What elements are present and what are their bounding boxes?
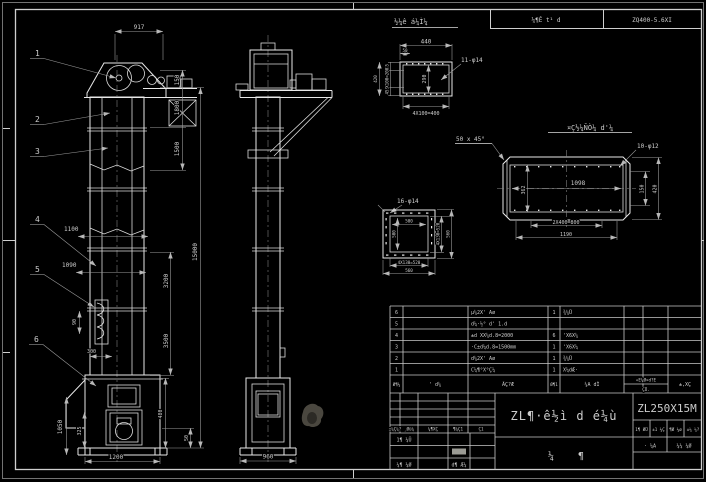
holes-label-10-d12: 10-φ12	[637, 143, 659, 150]
detail-flange: 16-φ14 500 500 4X130=520 560 4X130=520 5…	[378, 198, 454, 275]
bom-material: X¼dÆ·	[563, 368, 578, 374]
drawing-canvas: ¼¶Ê t¹ d ZQ400-5.6XI ½¼ê á¼Ì¼	[0, 0, 706, 482]
detail-casing-section: ¤Ç½¼ÑÒ¼ d'¼ 50 x 45° 10-φ12 1098 362 150…	[455, 123, 662, 240]
dim-90: 90	[72, 319, 78, 325]
bom-header-weight-sub: ÇÜ.	[642, 387, 650, 392]
bom-qty: 1	[552, 368, 555, 374]
bom-header-material: ¼A dÌ	[584, 381, 599, 388]
detail-channel-frame: 440 50 45 2X100=200 45 420 290 11-φ14 4X…	[373, 39, 483, 118]
bom-name: μ¼2X' Aø	[471, 310, 495, 316]
dim-50: 50	[184, 435, 190, 441]
bom-material: 'X6X¼	[563, 333, 578, 339]
stage-cell: ¶Ø ¼ø	[669, 427, 682, 433]
dim-flange-inner-w: 500	[405, 219, 413, 224]
bom-name: d¼·½° d' 1.d	[471, 321, 507, 328]
holes-label-11-d14: 11-φ14	[461, 57, 483, 64]
header-cell-1: ¼¶Ê t¹ d	[532, 16, 561, 24]
balloon-2: 2	[35, 115, 40, 124]
dim-45-bottom: 45	[385, 89, 390, 95]
bom-header-name: ÃÇ?Æ	[502, 381, 514, 388]
front-view-dimensions: 917 150 1800 1500 15000 3200 3500 1100 1…	[57, 24, 204, 464]
side-motor	[296, 74, 312, 90]
dim-1050: 1050	[57, 419, 64, 434]
dim-960: 960	[263, 454, 274, 461]
dim-290: 290	[422, 74, 428, 83]
dim-4x100-400: 4X100=400	[412, 111, 439, 117]
bom-header-seq: Ø¶¼	[393, 382, 401, 388]
cad-drawing-page: ¼¶Ê t¹ d ZQ400-5.6XI ½¼ê á¼Ì¼	[0, 0, 706, 482]
bom-name: d¼2X' Aø	[471, 356, 495, 362]
header-cell-2-gearbox-model: ZQ400-5.6XI	[632, 17, 672, 24]
sign-label-3: d¶ Æ¼	[451, 463, 466, 469]
dim-flange-right-pitch: 4X130=520	[436, 222, 441, 245]
bom-seq: 4	[395, 333, 398, 339]
bom-name: C¼¶°X°Ç¼	[471, 368, 495, 374]
detail-channel-title: ½¼ê á¼Ì¼	[394, 17, 428, 26]
dim-3500: 3500	[163, 333, 170, 348]
bom-qty: 1	[552, 356, 555, 362]
feed-chute	[66, 380, 85, 428]
sheet-count: · ¼A	[644, 444, 656, 450]
bom-name: ·C±d¼d.8=1500mm	[471, 345, 516, 351]
bom-material: ¾¼Ü	[563, 309, 572, 316]
dim-1190: 1190	[560, 232, 572, 238]
balloon-5: 5	[35, 265, 40, 274]
stage-cell: 1¶ ØÜ	[635, 427, 648, 432]
bom-material: 'X6X¼	[563, 345, 578, 351]
stage-cell: ±¼ ¼?	[687, 427, 700, 433]
rev-label: ¼¶XÇ	[428, 427, 439, 433]
dim-15000-total-height: 15000	[192, 243, 199, 261]
dim-420-left: 420	[373, 75, 378, 83]
rev-label: ¸Øü¼	[404, 427, 415, 433]
bom-header-code: ' d¼	[429, 382, 441, 388]
title-char-right: ¶	[578, 451, 584, 462]
bom-seq: 5	[395, 322, 398, 328]
bom-seq: 3	[395, 345, 398, 351]
dim-1100: 1100	[64, 226, 79, 233]
model-number: ZL250X15M	[637, 402, 697, 415]
bom-header-qty: Ø¶1	[550, 382, 558, 387]
render-artifact-blob	[302, 404, 324, 427]
dim-1800: 1800	[174, 100, 181, 115]
dim-flange-inner-h: 500	[392, 230, 397, 238]
dim-917: 917	[134, 24, 145, 31]
dim-flange-bottom-pitch: 4X130=520	[398, 260, 421, 265]
dim-150: 150	[174, 74, 181, 85]
dim-362: 362	[521, 185, 527, 194]
dim-flange-right-total: 560	[446, 230, 451, 238]
drawing-title: ZL¶·ê½ì d é¼ù	[511, 409, 618, 423]
bom-seq: 6	[395, 310, 398, 316]
bom-header-remark: ±,XÇ	[679, 382, 691, 388]
dim-2x100: 2X100=200	[385, 67, 390, 90]
dim-2x400-800: 2X400=800	[552, 220, 579, 226]
section-title: ¤Ç½¼ÑÒ¼ d'¼	[567, 123, 613, 132]
bucket-chain-detail	[95, 300, 108, 344]
title-char-left: ¼	[548, 450, 554, 462]
bom-seq: 2	[395, 356, 398, 362]
dim-480: 480	[158, 409, 164, 418]
bom-header-weight: «E¼Ø×d?E	[636, 378, 657, 384]
dim-flange-bottom-total: 560	[405, 268, 413, 273]
head-pulley	[107, 66, 132, 91]
sheet-number: ¼¼ ¼Ø	[676, 443, 691, 450]
balloon-4: 4	[35, 215, 40, 224]
balloon-3: 3	[35, 147, 40, 156]
signature-mark	[452, 449, 466, 455]
dim-150-right: 150	[640, 184, 646, 193]
dim-325: 325	[77, 426, 83, 435]
bom-qty: 1	[552, 310, 555, 316]
bom-qty: 1	[552, 345, 555, 351]
bom-qty: 6	[552, 333, 555, 339]
rev-label: ¶¼Ç1	[453, 427, 464, 433]
bom-material: ¾¼Ü	[563, 355, 572, 362]
bom-seq: 1	[395, 368, 398, 374]
dim-1500: 1500	[174, 141, 181, 156]
side-view: 960	[236, 35, 332, 465]
dim-1200: 1200	[109, 454, 124, 461]
sign-label-1: 1¶ ¼Ü	[396, 437, 411, 444]
dim-1090: 1090	[62, 262, 77, 269]
chamfer-note: 50 x 45°	[456, 136, 485, 143]
dim-440: 440	[421, 39, 432, 46]
sheet-header-band: ¼¶Ê t¹ d ZQ400-5.6XI ½¼ê á¼Ì¼	[392, 9, 702, 29]
sign-label-2: ¼¶ ¼Ø	[396, 462, 411, 469]
dim-300: 300	[87, 349, 96, 355]
stage-cell: ±1 ¼Ç	[652, 427, 665, 433]
dim-1098: 1098	[571, 180, 586, 187]
title-block: ±¼Ç¼? ¸Øü¼ ¼¶XÇ ¶¼Ç1 Ç1 1¶ ¼Ü ¼¶ ¼Ø d¶ Æ…	[389, 393, 702, 470]
balloon-1: 1	[35, 49, 40, 58]
holes-label-16-d14: 16-φ14	[397, 198, 419, 205]
dim-3200: 3200	[163, 273, 170, 288]
dim-50-margin: 50	[402, 48, 408, 53]
balloon-6: 6	[34, 335, 39, 344]
rev-label: Ç1	[478, 427, 484, 432]
dim-420-right: 420	[653, 184, 659, 193]
bom-name: ±d XX¼d.8=2000	[471, 333, 513, 339]
